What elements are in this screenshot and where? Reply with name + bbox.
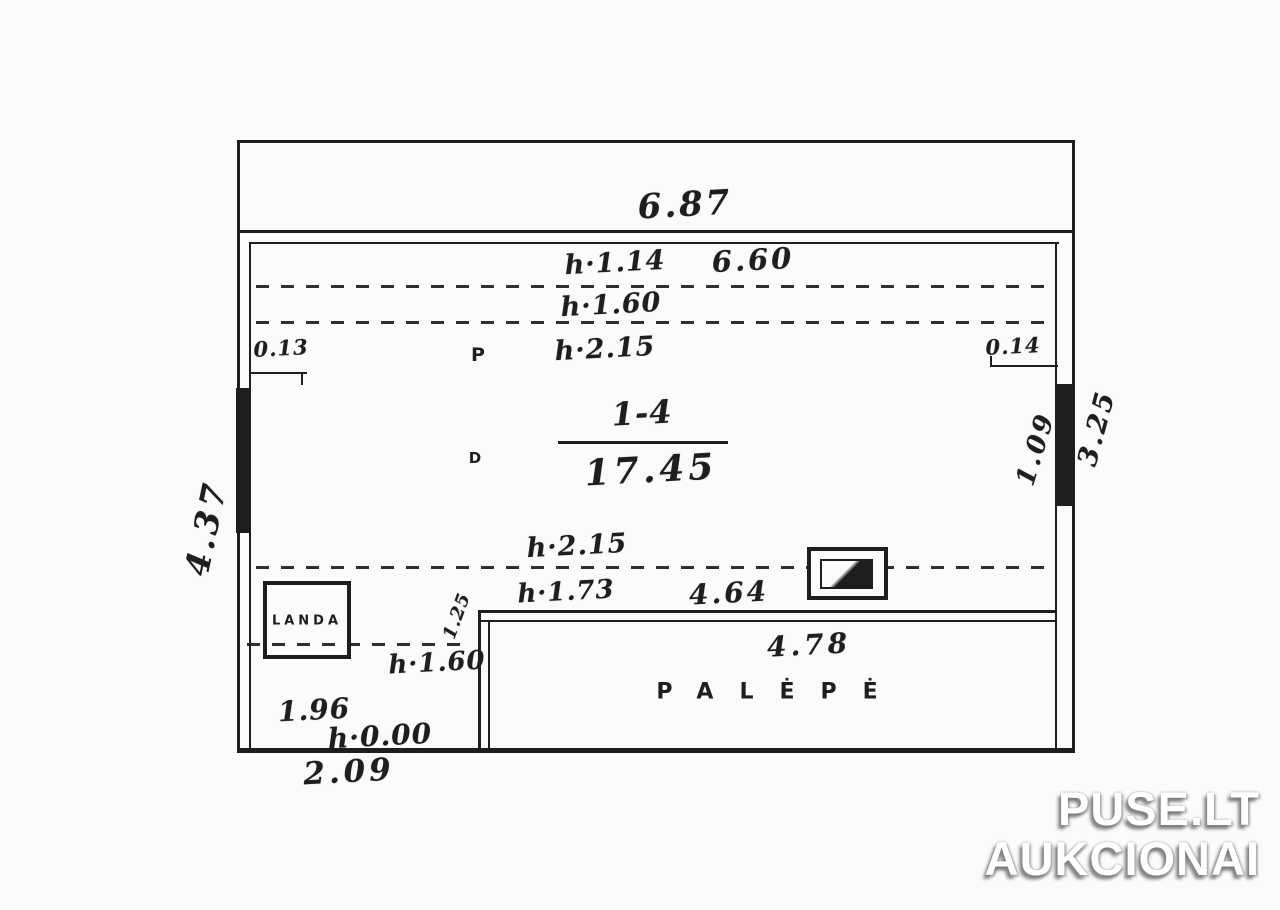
wall-palepe-left-2 bbox=[488, 622, 490, 748]
room-area: 17.45 bbox=[584, 446, 719, 495]
height-label-215b: h·2.15 bbox=[526, 528, 628, 564]
height-label-000: h·0.00 bbox=[327, 717, 433, 755]
wall-main-top-inner bbox=[249, 242, 1059, 244]
dim-inner-width: 6.60 bbox=[711, 241, 795, 279]
dim-top-width: 6.87 bbox=[637, 183, 734, 228]
room-number: 1-4 bbox=[611, 392, 674, 433]
dim-corner-diag: 1.25 bbox=[439, 590, 475, 642]
dim-bottom-width: 2.09 bbox=[302, 752, 395, 793]
wall-inner-top-1 bbox=[478, 610, 1057, 613]
window-symbol-fill bbox=[820, 559, 873, 589]
height-label-215a: h·2.15 bbox=[554, 331, 656, 367]
floor-plan-scan: 1-4 17.45 6.87 h·1.14 6.60 h·1.60 h·2.15… bbox=[0, 0, 1280, 910]
dim-tick-013 bbox=[301, 372, 303, 385]
dim-line-014 bbox=[990, 365, 1058, 367]
mark-p: P bbox=[471, 344, 485, 366]
fraction-line bbox=[558, 441, 728, 444]
room-name-palepe: PALĖPĖ bbox=[656, 680, 903, 705]
watermark: PUSE.LT AUKCIONAI bbox=[985, 784, 1260, 884]
dim-left-height: 4.37 bbox=[177, 477, 235, 579]
height-label-160b: h·1.60 bbox=[388, 645, 487, 680]
window-right-wall bbox=[1056, 384, 1073, 506]
wall-inner-top-2 bbox=[478, 620, 1057, 622]
wall-palepe-left-1 bbox=[478, 610, 481, 750]
dim-offset-left: 0.13 bbox=[253, 334, 309, 362]
window-left-wall bbox=[236, 388, 251, 533]
dim-mid-width: 4.64 bbox=[688, 574, 770, 611]
dim-line-013 bbox=[250, 372, 307, 374]
dim-right-inner-height: 1.09 bbox=[1011, 409, 1062, 490]
contour-line-3 bbox=[256, 566, 1052, 569]
wall-band-bottom bbox=[237, 230, 1075, 233]
dim-offset-right: 0.14 bbox=[985, 332, 1041, 360]
window-symbol bbox=[807, 547, 888, 600]
watermark-line-2: AUKCIONAI bbox=[985, 834, 1260, 884]
dim-right-outer-height: 3.25 bbox=[1072, 386, 1122, 469]
contour-line-4 bbox=[247, 643, 463, 646]
height-label-173: h·1.73 bbox=[517, 574, 616, 609]
dim-palepe-width: 4.78 bbox=[766, 626, 852, 663]
watermark-line-1: PUSE.LT bbox=[985, 784, 1260, 834]
contour-line-2 bbox=[256, 321, 1052, 324]
height-label-114: h·1.14 bbox=[564, 245, 666, 281]
height-label-160a: h·1.60 bbox=[560, 287, 662, 323]
room-name-landa: LANDA bbox=[272, 614, 342, 629]
mark-d: D bbox=[469, 449, 481, 467]
wall-top-outer bbox=[237, 140, 1075, 143]
